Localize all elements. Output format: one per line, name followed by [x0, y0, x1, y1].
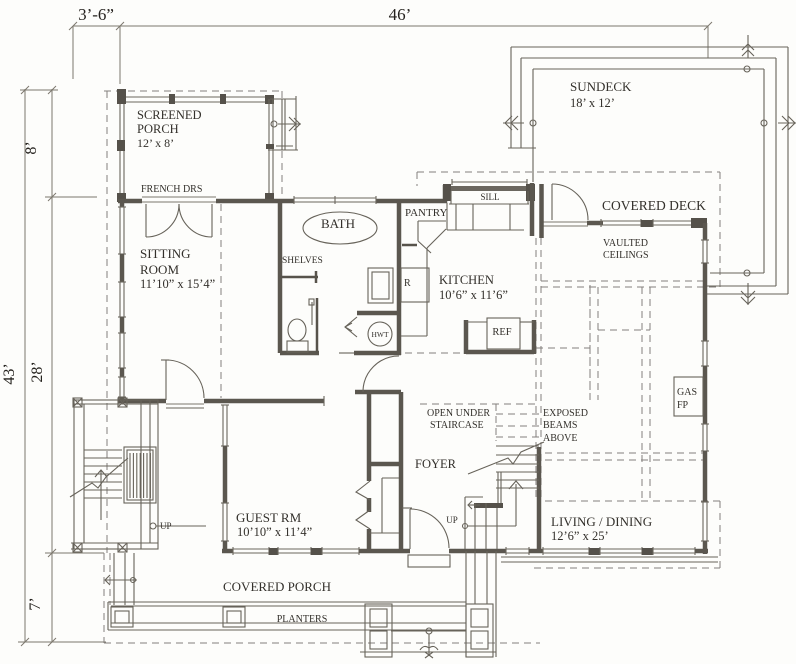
svg-text:GAS: GAS — [677, 387, 697, 398]
svg-text:43’: 43’ — [1, 363, 18, 384]
svg-text:EXPOSED: EXPOSED — [543, 408, 588, 419]
svg-text:10’6” x 11’6”: 10’6” x 11’6” — [439, 288, 508, 302]
svg-text:COVERED PORCH: COVERED PORCH — [223, 579, 331, 594]
svg-text:COVERED DECK: COVERED DECK — [602, 198, 706, 213]
svg-text:18’ x 12’: 18’ x 12’ — [570, 96, 615, 110]
svg-text:HWT: HWT — [371, 330, 388, 339]
svg-text:PORCH: PORCH — [137, 122, 179, 136]
svg-text:OPEN UNDER: OPEN UNDER — [427, 408, 490, 419]
svg-text:BATH: BATH — [321, 216, 355, 231]
svg-text:10’10” x 11’4”: 10’10” x 11’4” — [237, 525, 312, 539]
svg-text:ROOM: ROOM — [140, 262, 179, 277]
svg-text:28’: 28’ — [29, 361, 46, 382]
svg-text:BEAMS: BEAMS — [543, 420, 577, 431]
svg-text:ABOVE: ABOVE — [543, 433, 577, 444]
svg-text:SHELVES: SHELVES — [282, 256, 323, 266]
svg-text:SILL: SILL — [481, 192, 500, 202]
svg-text:GUEST RM: GUEST RM — [236, 510, 302, 525]
svg-text:R: R — [404, 278, 411, 289]
svg-text:SCREENED: SCREENED — [137, 108, 202, 122]
svg-text:FRENCH DRS: FRENCH DRS — [141, 184, 202, 195]
svg-text:3’-6”: 3’-6” — [78, 5, 114, 24]
svg-text:KITCHEN: KITCHEN — [439, 273, 494, 287]
svg-text:STAIRCASE: STAIRCASE — [430, 420, 484, 431]
svg-text:UP: UP — [446, 515, 458, 525]
svg-text:FOYER: FOYER — [415, 457, 457, 471]
svg-text:SITTING: SITTING — [140, 246, 191, 261]
svg-text:REF: REF — [492, 327, 511, 338]
svg-text:CEILINGS: CEILINGS — [603, 250, 649, 261]
svg-text:SUNDECK: SUNDECK — [570, 79, 632, 94]
svg-text:FP: FP — [677, 400, 689, 411]
svg-text:LIVING / DINING: LIVING / DINING — [551, 514, 652, 529]
svg-text:PANTRY: PANTRY — [405, 207, 447, 219]
svg-text:46’: 46’ — [389, 5, 412, 24]
svg-text:8’: 8’ — [23, 141, 40, 154]
svg-text:12’6” x 25’: 12’6” x 25’ — [551, 529, 609, 543]
svg-text:12’ x 8’: 12’ x 8’ — [137, 136, 174, 150]
svg-text:7’: 7’ — [27, 597, 44, 610]
svg-text:11’10” x 15’4”: 11’10” x 15’4” — [140, 277, 215, 291]
svg-text:PLANTERS: PLANTERS — [277, 614, 328, 625]
svg-text:UP: UP — [160, 521, 172, 531]
svg-text:VAULTED: VAULTED — [603, 238, 648, 249]
